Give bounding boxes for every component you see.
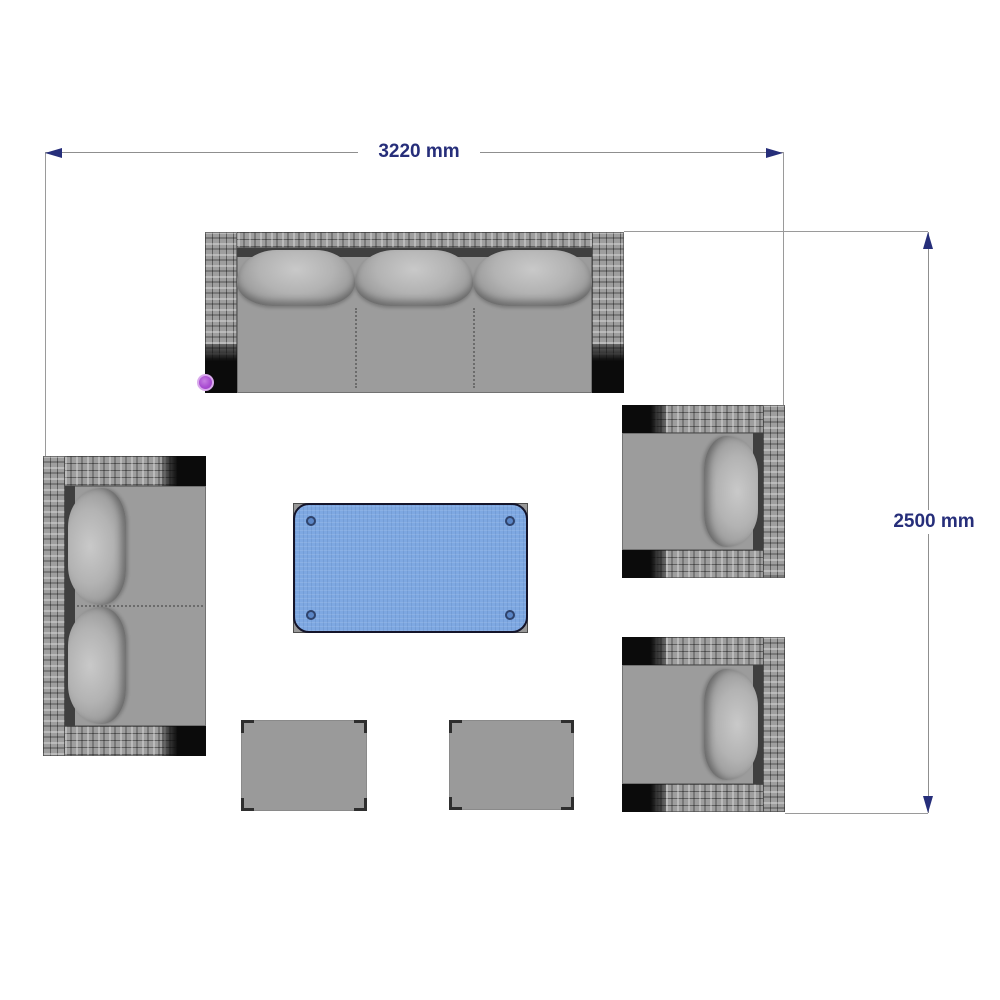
armchair-upper-back-frame [763,405,785,578]
loveseat-2-seater[interactable] [43,456,206,756]
armchair-upper-arm-bottom-end [622,550,666,578]
loveseat-arm-top-end [162,456,206,486]
armchair-lower[interactable] [622,637,785,812]
stool-corner-mark [561,797,574,810]
stool-corner-mark [354,720,367,733]
loveseat-back-cushion-2 [68,607,126,724]
height-dimension-label: 2500 mm [873,510,995,534]
loveseat-seat-seam [77,605,203,607]
table-glass-top [293,503,528,633]
loveseat-arm-bottom-end [162,726,206,756]
table-bolt-bl [306,610,316,620]
dimension-arrow-up-icon [923,232,933,249]
dimension-arrow-left-icon [45,148,62,158]
floorplan-canvas: 3220 mm 2500 mm [0,0,1000,1000]
sofa-back-cushion-3 [473,250,592,306]
sofa-seat-seam-2 [473,308,475,388]
armchair-upper-arm-top-end [622,405,666,433]
stool-corner-mark [241,798,254,811]
footstool-left[interactable] [241,720,367,811]
footstool-right[interactable] [449,720,574,810]
armchair-upper[interactable] [622,405,785,578]
width-extension-line-right [783,152,784,405]
sofa-3-seater[interactable] [205,232,624,393]
dimension-arrow-down-icon [923,796,933,813]
table-bolt-br [505,610,515,620]
stool-corner-mark [449,720,462,733]
stool-corner-mark [241,720,254,733]
stool-corner-mark [354,798,367,811]
loveseat-back-cushion-1 [68,488,126,605]
width-extension-line-left [45,152,46,456]
height-extension-line-top [624,231,928,232]
armchair-upper-back-cushion [704,436,758,547]
sofa-back-cushion-1 [237,250,355,306]
loveseat-back-frame [43,456,65,756]
dimension-arrow-right-icon [766,148,783,158]
sofa-seat-seam-1 [355,308,357,388]
table-bolt-tl [306,516,316,526]
sofa-back-cushion-2 [355,250,473,306]
coffee-table[interactable] [293,503,528,633]
armchair-lower-back-cushion [704,669,758,780]
stool-corner-mark [449,797,462,810]
selection-handle[interactable] [197,374,214,391]
sofa-arm-right-end [592,344,624,393]
armchair-lower-arm-bottom-end [622,784,666,812]
armchair-lower-arm-top-end [622,637,666,665]
armchair-lower-back-frame [763,637,785,812]
sofa-back-frame [205,232,624,248]
width-dimension-label: 3220 mm [358,140,480,164]
stool-corner-mark [561,720,574,733]
height-extension-line-bottom [785,813,928,814]
table-bolt-tr [505,516,515,526]
